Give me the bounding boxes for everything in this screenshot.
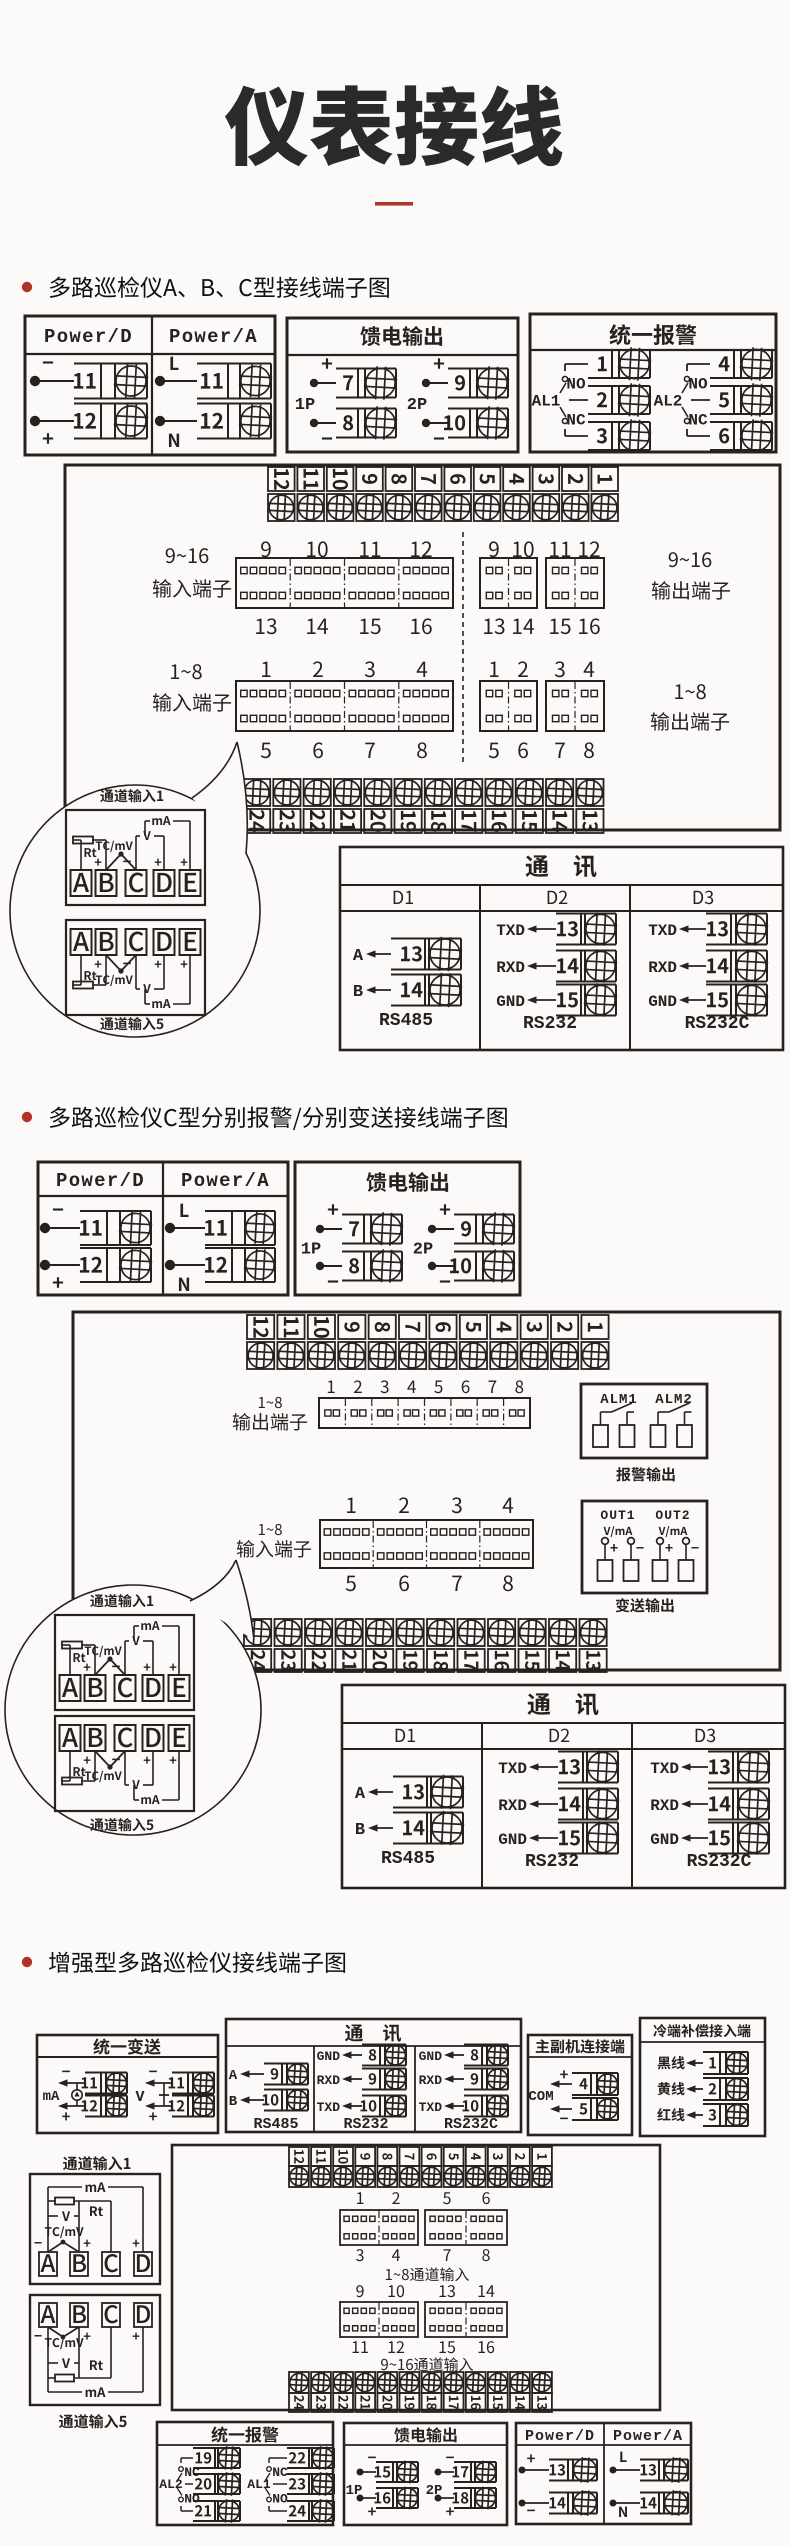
svg-text:NC: NC: [566, 411, 586, 429]
svg-text:RS485: RS485: [379, 1011, 433, 1031]
svg-text:RS232: RS232: [523, 1014, 577, 1034]
svg-text:GND: GND: [419, 2049, 443, 2064]
svg-text:TXD: TXD: [648, 922, 677, 940]
svg-text:AL2: AL2: [159, 2477, 183, 2492]
svg-text:Power/A: Power/A: [613, 2428, 683, 2445]
svg-text:TXD: TXD: [317, 2100, 341, 2115]
svg-text:COM: COM: [528, 2089, 553, 2105]
svg-text:NC: NC: [688, 411, 708, 429]
svg-text:OUT2: OUT2: [655, 1508, 690, 1523]
svg-text:2P: 2P: [413, 1241, 433, 1260]
svg-text:Power/D: Power/D: [56, 1170, 145, 1192]
svg-text:A: A: [353, 947, 364, 966]
svg-text:RXD: RXD: [496, 959, 525, 977]
svg-text:Power/A: Power/A: [169, 326, 258, 348]
svg-text:RS485: RS485: [253, 2116, 298, 2133]
svg-text:V: V: [135, 2089, 144, 2106]
svg-text:TXD: TXD: [496, 922, 525, 940]
svg-text:NO: NO: [184, 2492, 200, 2507]
svg-text:NO: NO: [566, 375, 586, 393]
svg-text:NO: NO: [688, 375, 708, 393]
svg-text:B: B: [229, 2094, 238, 2110]
svg-text:RXD: RXD: [650, 1797, 679, 1815]
svg-text:Power/A: Power/A: [181, 1170, 270, 1192]
svg-text:RXD: RXD: [419, 2073, 443, 2088]
svg-text:AL2: AL2: [654, 392, 683, 410]
svg-text:B: B: [355, 1821, 365, 1840]
svg-text:NC: NC: [272, 2465, 288, 2480]
svg-text:Power/D: Power/D: [525, 2428, 595, 2445]
svg-text:A: A: [229, 2068, 238, 2084]
svg-text:2P: 2P: [407, 396, 427, 415]
svg-text:TXD: TXD: [498, 1760, 527, 1778]
svg-text:GND: GND: [317, 2049, 341, 2064]
svg-text:1P: 1P: [295, 396, 315, 415]
svg-text:TXD: TXD: [650, 1760, 679, 1778]
svg-text:AL1: AL1: [532, 392, 561, 410]
svg-text:TXD: TXD: [419, 2100, 443, 2115]
svg-text:RXD: RXD: [498, 1797, 527, 1815]
svg-text:RXD: RXD: [648, 959, 677, 977]
svg-text:RS232: RS232: [343, 2116, 388, 2133]
svg-text:mA: mA: [43, 2089, 60, 2105]
svg-text:OUT1: OUT1: [600, 1508, 635, 1523]
svg-text:RXD: RXD: [317, 2073, 341, 2088]
svg-text:RS232C: RS232C: [685, 1014, 750, 1034]
svg-text:RS232: RS232: [525, 1852, 579, 1872]
svg-text:ALM1: ALM1: [600, 1392, 638, 1408]
svg-text:GND: GND: [648, 993, 677, 1011]
svg-text:RS232C: RS232C: [444, 2116, 498, 2133]
svg-text:AL1: AL1: [247, 2477, 271, 2492]
svg-text:RS485: RS485: [381, 1849, 435, 1869]
svg-text:GND: GND: [498, 1831, 527, 1849]
svg-text:ALM2: ALM2: [655, 1392, 693, 1408]
svg-text:GND: GND: [496, 993, 525, 1011]
svg-text:Power/D: Power/D: [44, 326, 133, 348]
svg-text:GND: GND: [650, 1831, 679, 1849]
svg-text:NC: NC: [184, 2465, 200, 2480]
svg-text:B: B: [353, 983, 363, 1002]
svg-text:1P: 1P: [301, 1241, 321, 1260]
svg-text:A: A: [355, 1785, 366, 1804]
svg-text:RS232C: RS232C: [687, 1852, 752, 1872]
svg-text:NO: NO: [272, 2492, 288, 2507]
